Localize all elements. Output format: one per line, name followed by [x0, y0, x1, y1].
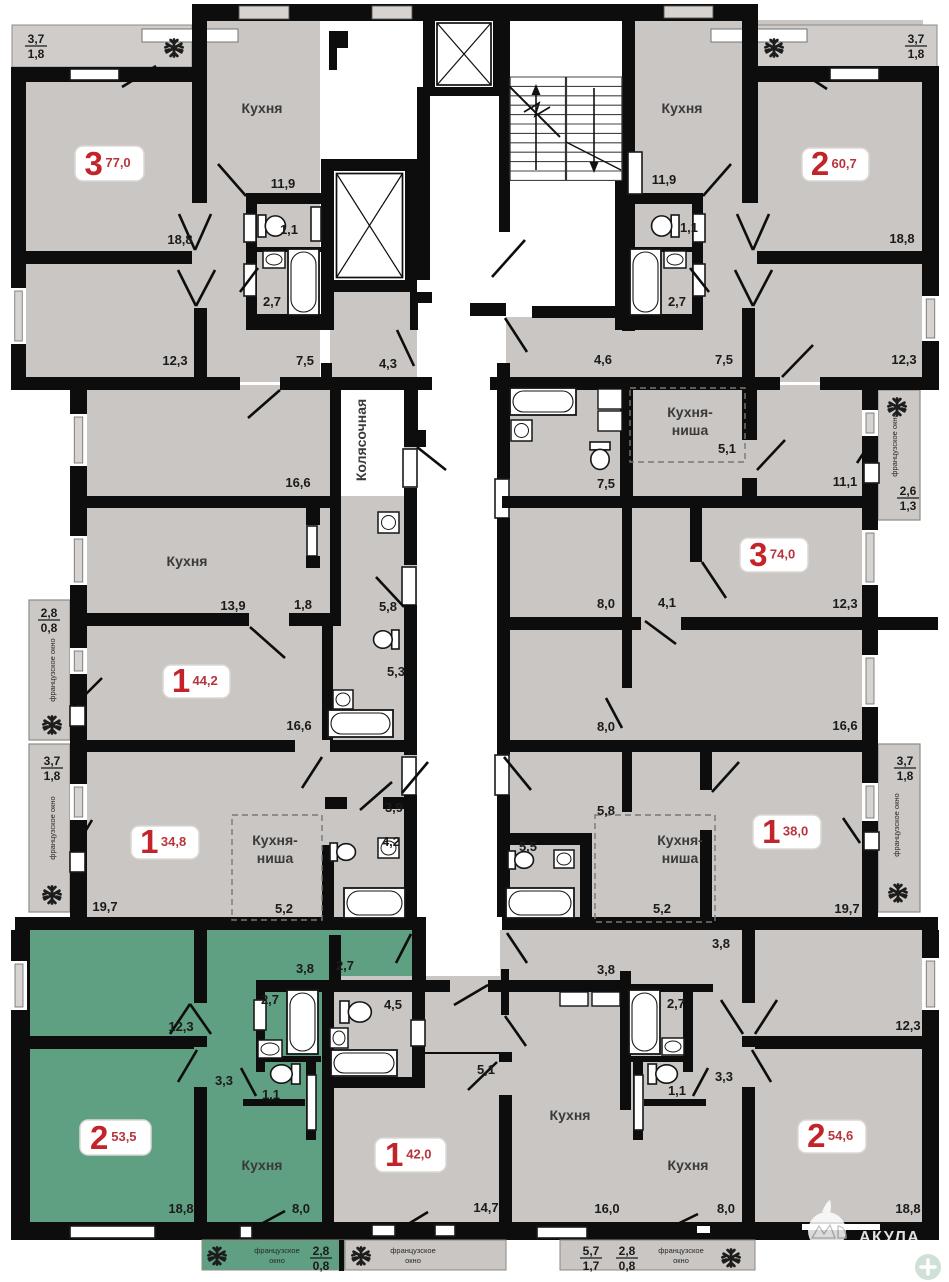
svg-text:5,2: 5,2: [275, 901, 293, 916]
svg-text:19,7: 19,7: [92, 899, 117, 914]
svg-text:5,2: 5,2: [653, 901, 671, 916]
svg-text:12,3: 12,3: [891, 352, 916, 367]
svg-text:3: 3: [749, 536, 767, 573]
svg-text:12,3: 12,3: [162, 353, 187, 368]
svg-text:Кухня: Кухня: [242, 1157, 283, 1173]
svg-text:1,1: 1,1: [262, 1087, 280, 1102]
svg-text:3,7: 3,7: [28, 32, 45, 46]
svg-text:Кухня-: Кухня-: [252, 832, 298, 848]
svg-text:французское окно: французское окно: [890, 413, 899, 476]
svg-text:окно: окно: [673, 1256, 689, 1265]
svg-text:7,5: 7,5: [715, 352, 733, 367]
svg-text:4,1: 4,1: [658, 595, 676, 610]
svg-text:2: 2: [90, 1119, 108, 1156]
svg-text:2,7: 2,7: [667, 996, 685, 1011]
svg-text:4,5: 4,5: [384, 997, 402, 1012]
svg-text:5,7: 5,7: [583, 1244, 600, 1258]
svg-text:Кухня-: Кухня-: [667, 404, 713, 420]
svg-text:окно: окно: [269, 1256, 285, 1265]
svg-text:1,1: 1,1: [680, 220, 698, 235]
svg-text:2,8: 2,8: [41, 606, 58, 620]
svg-text:1,8: 1,8: [897, 769, 914, 783]
svg-text:1,7: 1,7: [583, 1259, 600, 1273]
svg-text:5,1: 5,1: [477, 1062, 495, 1077]
svg-text:4,2: 4,2: [382, 834, 400, 849]
svg-text:1: 1: [762, 813, 780, 850]
svg-text:12,3: 12,3: [832, 596, 857, 611]
svg-text:16,6: 16,6: [285, 475, 310, 490]
svg-text:0,8: 0,8: [619, 1259, 636, 1273]
svg-text:13,9: 13,9: [220, 598, 245, 613]
svg-text:16,0: 16,0: [594, 1201, 619, 1216]
svg-text:2,7: 2,7: [668, 294, 686, 309]
svg-text:0,8: 0,8: [313, 1259, 330, 1273]
svg-text:0,8: 0,8: [41, 621, 58, 635]
svg-text:3,7: 3,7: [897, 754, 914, 768]
svg-text:французское: французское: [390, 1246, 436, 1255]
svg-text:1: 1: [140, 823, 158, 860]
svg-text:2,6: 2,6: [900, 484, 917, 498]
svg-text:ниша: ниша: [662, 850, 699, 866]
svg-text:1,3: 1,3: [900, 499, 917, 513]
svg-text:ниша: ниша: [257, 850, 294, 866]
svg-text:7,5: 7,5: [597, 476, 615, 491]
svg-text:2,7: 2,7: [263, 294, 281, 309]
svg-text:8,0: 8,0: [292, 1201, 310, 1216]
svg-text:5,1: 5,1: [718, 441, 736, 456]
svg-text:38,0: 38,0: [783, 823, 808, 838]
svg-text:французское окно: французское окно: [48, 796, 57, 859]
svg-text:французское: французское: [658, 1246, 704, 1255]
svg-text:5,8: 5,8: [597, 803, 615, 818]
svg-text:Кухня: Кухня: [167, 553, 208, 569]
svg-text:Кухня: Кухня: [668, 1157, 709, 1173]
svg-text:42,0: 42,0: [406, 1146, 431, 1161]
svg-text:8,0: 8,0: [717, 1201, 735, 1216]
svg-text:1,8: 1,8: [294, 597, 312, 612]
svg-text:Кухня: Кухня: [242, 100, 283, 116]
svg-text:1,8: 1,8: [908, 47, 925, 61]
svg-text:60,7: 60,7: [831, 156, 856, 171]
svg-text:Кухня: Кухня: [662, 100, 703, 116]
svg-text:5,5: 5,5: [519, 839, 537, 854]
svg-text:1,1: 1,1: [280, 222, 298, 237]
svg-text:2: 2: [807, 1117, 825, 1154]
svg-text:окно: окно: [405, 1256, 421, 1265]
svg-text:3,3: 3,3: [715, 1069, 733, 1084]
svg-text:3,3: 3,3: [215, 1073, 233, 1088]
svg-text:18,8: 18,8: [889, 231, 914, 246]
svg-text:4,6: 4,6: [594, 352, 612, 367]
svg-text:2: 2: [811, 145, 829, 182]
svg-text:ниша: ниша: [672, 422, 709, 438]
svg-text:1,8: 1,8: [44, 769, 61, 783]
svg-text:3,9: 3,9: [385, 800, 403, 815]
svg-text:14,7: 14,7: [473, 1200, 498, 1215]
svg-text:2,7: 2,7: [261, 992, 279, 1007]
svg-text:8,0: 8,0: [597, 596, 615, 611]
svg-text:11,9: 11,9: [271, 176, 296, 191]
svg-text:1: 1: [385, 1136, 403, 1173]
svg-text:1,8: 1,8: [28, 47, 45, 61]
svg-text:французское окно: французское окно: [48, 638, 57, 701]
svg-text:7,5: 7,5: [296, 353, 314, 368]
svg-text:2,7: 2,7: [336, 958, 354, 973]
svg-text:11,1: 11,1: [833, 474, 858, 489]
svg-text:1: 1: [172, 662, 190, 699]
svg-text:54,6: 54,6: [828, 1128, 853, 1143]
svg-text:3,7: 3,7: [44, 754, 61, 768]
svg-text:18,8: 18,8: [895, 1201, 920, 1216]
svg-text:18,8: 18,8: [167, 232, 192, 247]
svg-text:1,1: 1,1: [668, 1083, 686, 1098]
svg-text:77,0: 77,0: [105, 155, 130, 170]
svg-text:53,5: 53,5: [111, 1129, 136, 1144]
svg-text:Колясочная: Колясочная: [353, 399, 369, 481]
svg-text:3: 3: [84, 145, 102, 182]
svg-text:3,8: 3,8: [296, 961, 314, 976]
svg-text:12,3: 12,3: [168, 1019, 193, 1034]
svg-text:16,6: 16,6: [832, 718, 857, 733]
svg-text:44,2: 44,2: [192, 673, 217, 688]
svg-text:8,0: 8,0: [597, 719, 615, 734]
svg-text:французское: французское: [254, 1246, 300, 1255]
svg-text:19,7: 19,7: [834, 901, 859, 916]
svg-text:3,8: 3,8: [712, 936, 730, 951]
svg-text:2,8: 2,8: [313, 1244, 330, 1258]
svg-text:11,9: 11,9: [652, 172, 677, 187]
svg-text:4,3: 4,3: [379, 356, 397, 371]
svg-text:74,0: 74,0: [770, 546, 795, 561]
svg-text:2,8: 2,8: [619, 1244, 636, 1258]
svg-text:АКУЛА: АКУЛА: [859, 1229, 920, 1246]
svg-text:3,7: 3,7: [908, 32, 925, 46]
svg-text:французское окно: французское окно: [892, 793, 901, 856]
svg-text:18,8: 18,8: [168, 1201, 193, 1216]
svg-text:3,8: 3,8: [597, 962, 615, 977]
svg-text:16,6: 16,6: [286, 718, 311, 733]
svg-text:12,3: 12,3: [895, 1018, 920, 1033]
svg-text:34,8: 34,8: [161, 834, 186, 849]
svg-text:Кухня-: Кухня-: [657, 832, 703, 848]
svg-text:5,8: 5,8: [379, 599, 397, 614]
svg-text:Кухня: Кухня: [550, 1107, 591, 1123]
svg-text:5,3: 5,3: [387, 664, 405, 679]
